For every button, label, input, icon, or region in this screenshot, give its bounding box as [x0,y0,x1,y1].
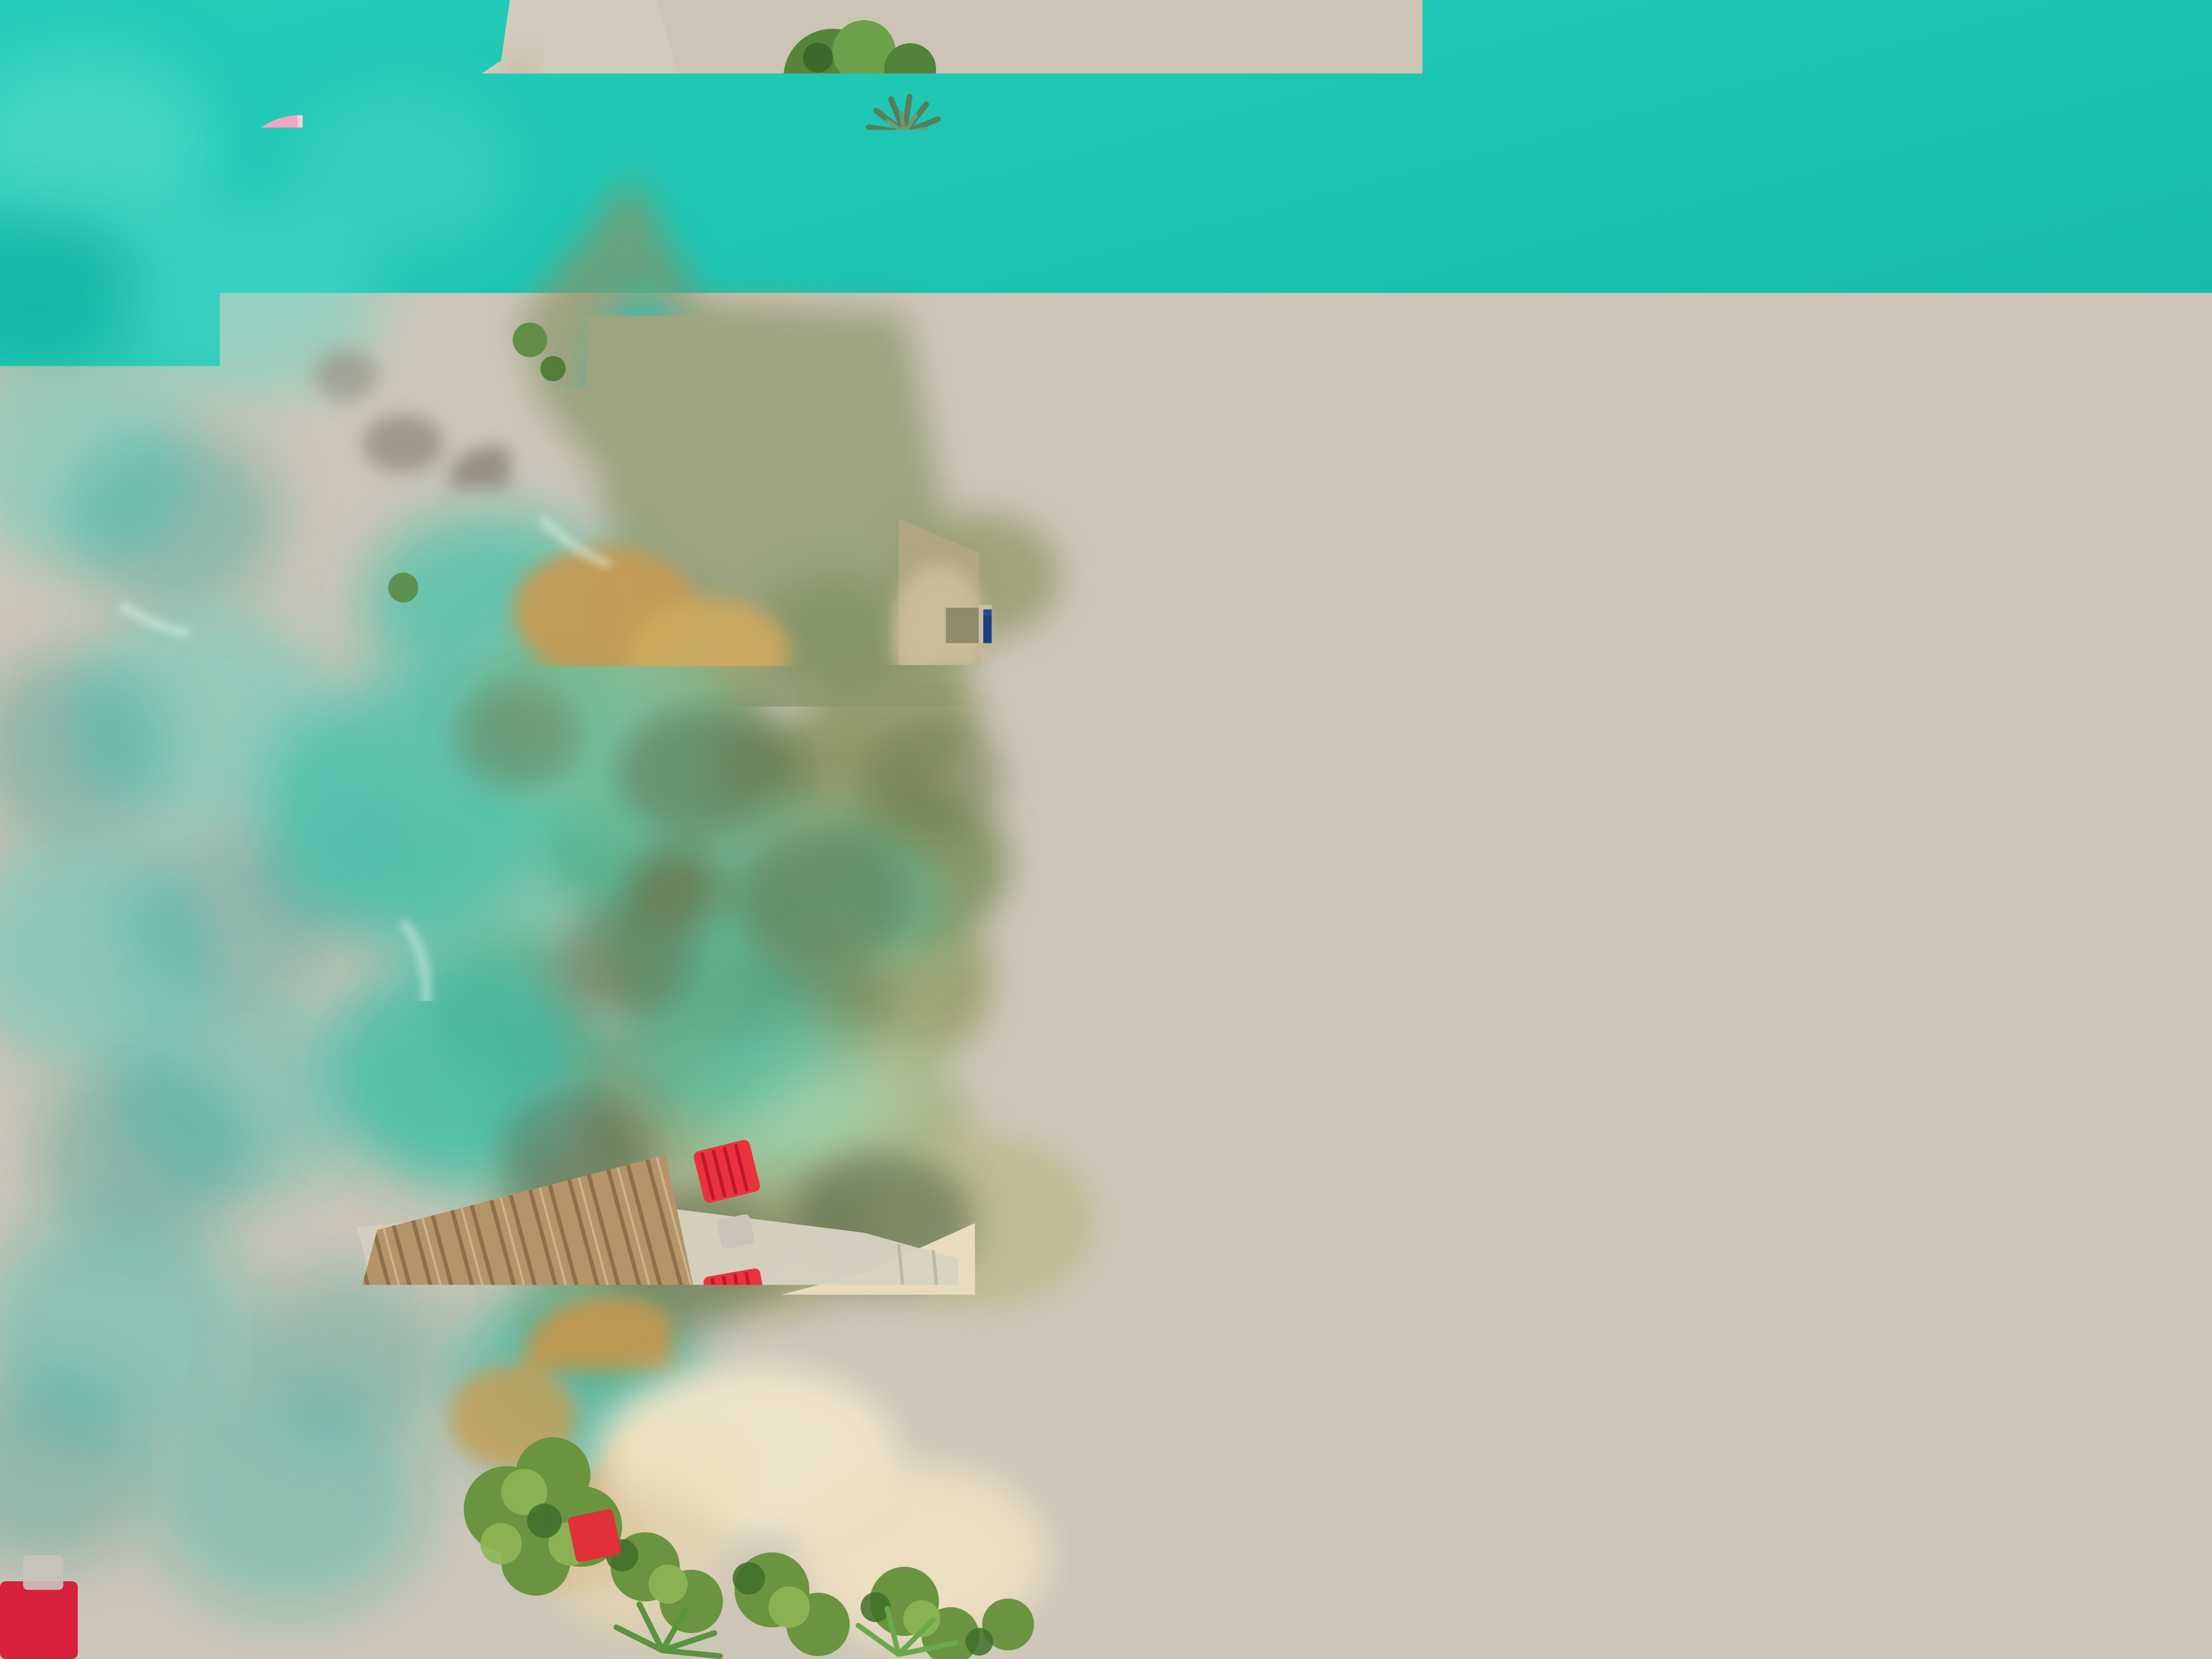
svg-text:JUST BE !: JUST BE ! [1035,655,1187,1073]
